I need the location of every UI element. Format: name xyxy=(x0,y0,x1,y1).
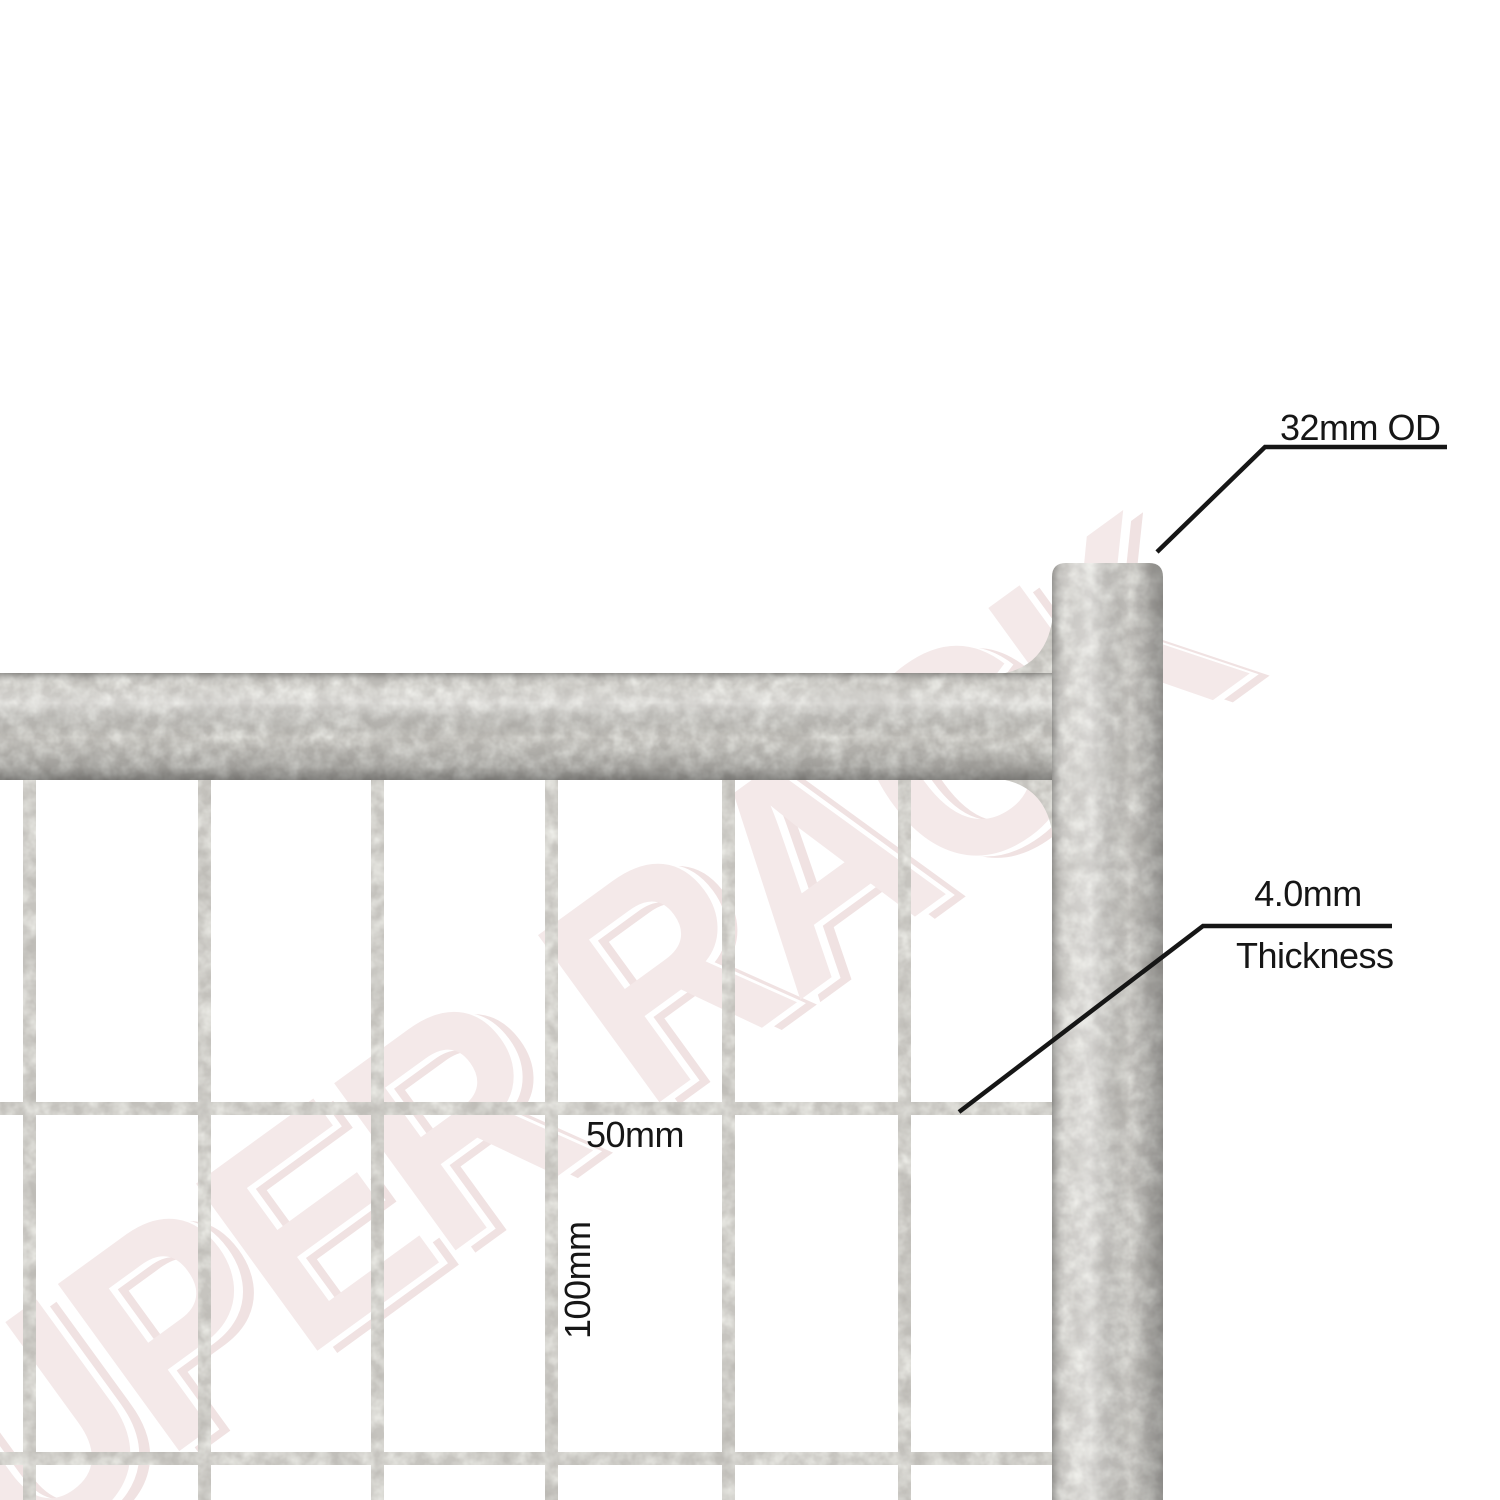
wire-thickness-value-label: 4.0mm xyxy=(1238,876,1378,912)
mesh-vertical-wire xyxy=(23,772,36,1500)
mesh-vertical-wire xyxy=(371,772,384,1500)
mesh-horizontal-wire xyxy=(0,1452,1058,1465)
mesh-vertical-wire xyxy=(898,772,911,1500)
mesh-vertical-wire xyxy=(198,772,211,1500)
mesh-grid xyxy=(0,772,1058,1500)
od-dimension-label: 32mm OD xyxy=(1280,410,1441,446)
weld-fillet-top xyxy=(1000,622,1052,674)
fence-structure-graphic xyxy=(0,0,1500,1500)
mesh-width-dimension-label: 50mm xyxy=(586,1117,684,1153)
weld-fillet-bottom xyxy=(1000,779,1052,831)
mesh-height-dimension-label: 100mm xyxy=(560,1229,596,1339)
wire-thickness-word-label: Thickness xyxy=(1236,938,1392,974)
mesh-vertical-wire xyxy=(545,772,558,1500)
mesh-horizontal-wire xyxy=(0,1102,1058,1115)
leader-line-od xyxy=(1157,447,1447,552)
product-diagram: SUPER RACK xyxy=(0,0,1500,1500)
mesh-vertical-wire xyxy=(722,772,735,1500)
post-cylinder-shading xyxy=(1052,563,1163,1500)
rail-cylinder-shading xyxy=(0,673,1052,780)
